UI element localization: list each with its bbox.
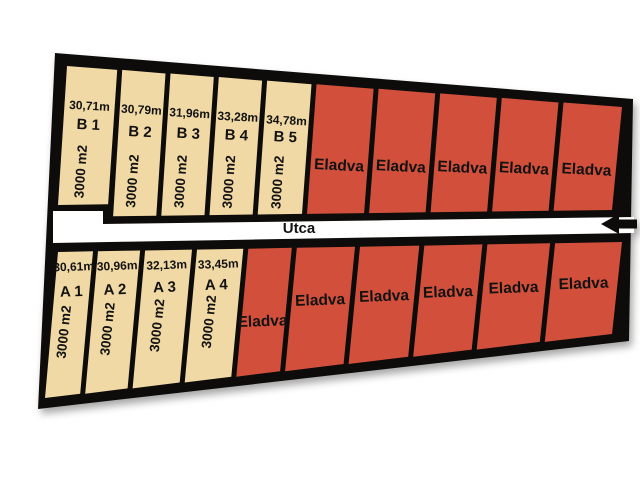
plot-sold: Eladva	[492, 98, 558, 212]
plot-shape-sold	[431, 93, 497, 212]
plot-shape-available	[58, 66, 117, 205]
sold-label: Eladva	[488, 279, 539, 298]
plot-sold: Eladva	[545, 242, 622, 342]
plot-id-label: B 1	[76, 116, 100, 134]
sold-label: Eladva	[375, 157, 426, 177]
sold-label: Eladva	[499, 159, 550, 179]
plot-id-label: A 2	[103, 281, 126, 299]
plot-shape-sold	[307, 84, 374, 214]
plot-sold: Eladva	[431, 93, 497, 212]
plot-b1: 30,71mB 13000 m2	[58, 66, 117, 205]
plot-sold: Eladva	[477, 243, 550, 349]
plot-shape-sold	[554, 103, 622, 211]
plot-sold: Eladva	[554, 103, 622, 211]
plot-shape-sold	[369, 89, 435, 213]
sold-label: Eladva	[295, 291, 346, 310]
plot-map: 30,71mB 13000 m230,79mB 23000 m231,96mB …	[0, 0, 640, 480]
plot-sold: Eladva	[369, 89, 435, 213]
plot-shape-sold	[492, 98, 558, 212]
plot-id-label: B 3	[176, 125, 200, 143]
plot-frontage-label: 30,79m	[121, 102, 162, 118]
plot-sold: Eladva	[349, 246, 420, 364]
sold-label: Eladva	[561, 160, 612, 180]
plot-row-B: 30,71mB 13000 m230,79mB 23000 m231,96mB …	[58, 66, 622, 216]
sold-label: Eladva	[437, 158, 488, 178]
plot-frontage-label: 33,28m	[217, 109, 258, 125]
plot-sold: Eladva	[285, 247, 355, 372]
plot-frontage-label: 31,96m	[169, 105, 210, 121]
plot-frontage-label: 30,96m	[97, 258, 138, 273]
plot-sold: Eladva	[413, 244, 482, 356]
sold-label: Eladva	[359, 287, 410, 306]
plot-frontage-label: 30,61m	[53, 259, 94, 274]
plot-frontage-label: 33,45m	[198, 256, 239, 271]
plot-id-label: A 4	[205, 276, 229, 294]
plot-sold: Eladva	[307, 84, 374, 214]
sold-label: Eladva	[314, 156, 365, 176]
plot-map-page: 30,71mB 13000 m230,79mB 23000 m231,96mB …	[0, 0, 640, 480]
plot-id-label: B 2	[128, 123, 152, 141]
plot-shape-available	[113, 70, 165, 216]
plot-id-label: B 5	[273, 128, 297, 146]
plot-frontage-label: 34,78m	[266, 112, 307, 128]
plot-id-label: A 3	[153, 279, 176, 297]
plot-id-label: B 4	[224, 126, 249, 144]
sold-label: Eladva	[558, 275, 609, 294]
plot-frontage-label: 32,13m	[146, 257, 187, 272]
sold-label: Eladva	[237, 312, 288, 331]
sold-label: Eladva	[423, 283, 474, 302]
plot-id-label: A 1	[60, 283, 83, 301]
street-label: Utca	[283, 220, 316, 237]
plot-b2: 30,79mB 23000 m2	[113, 70, 165, 216]
plot-frontage-label: 30,71m	[69, 98, 110, 114]
